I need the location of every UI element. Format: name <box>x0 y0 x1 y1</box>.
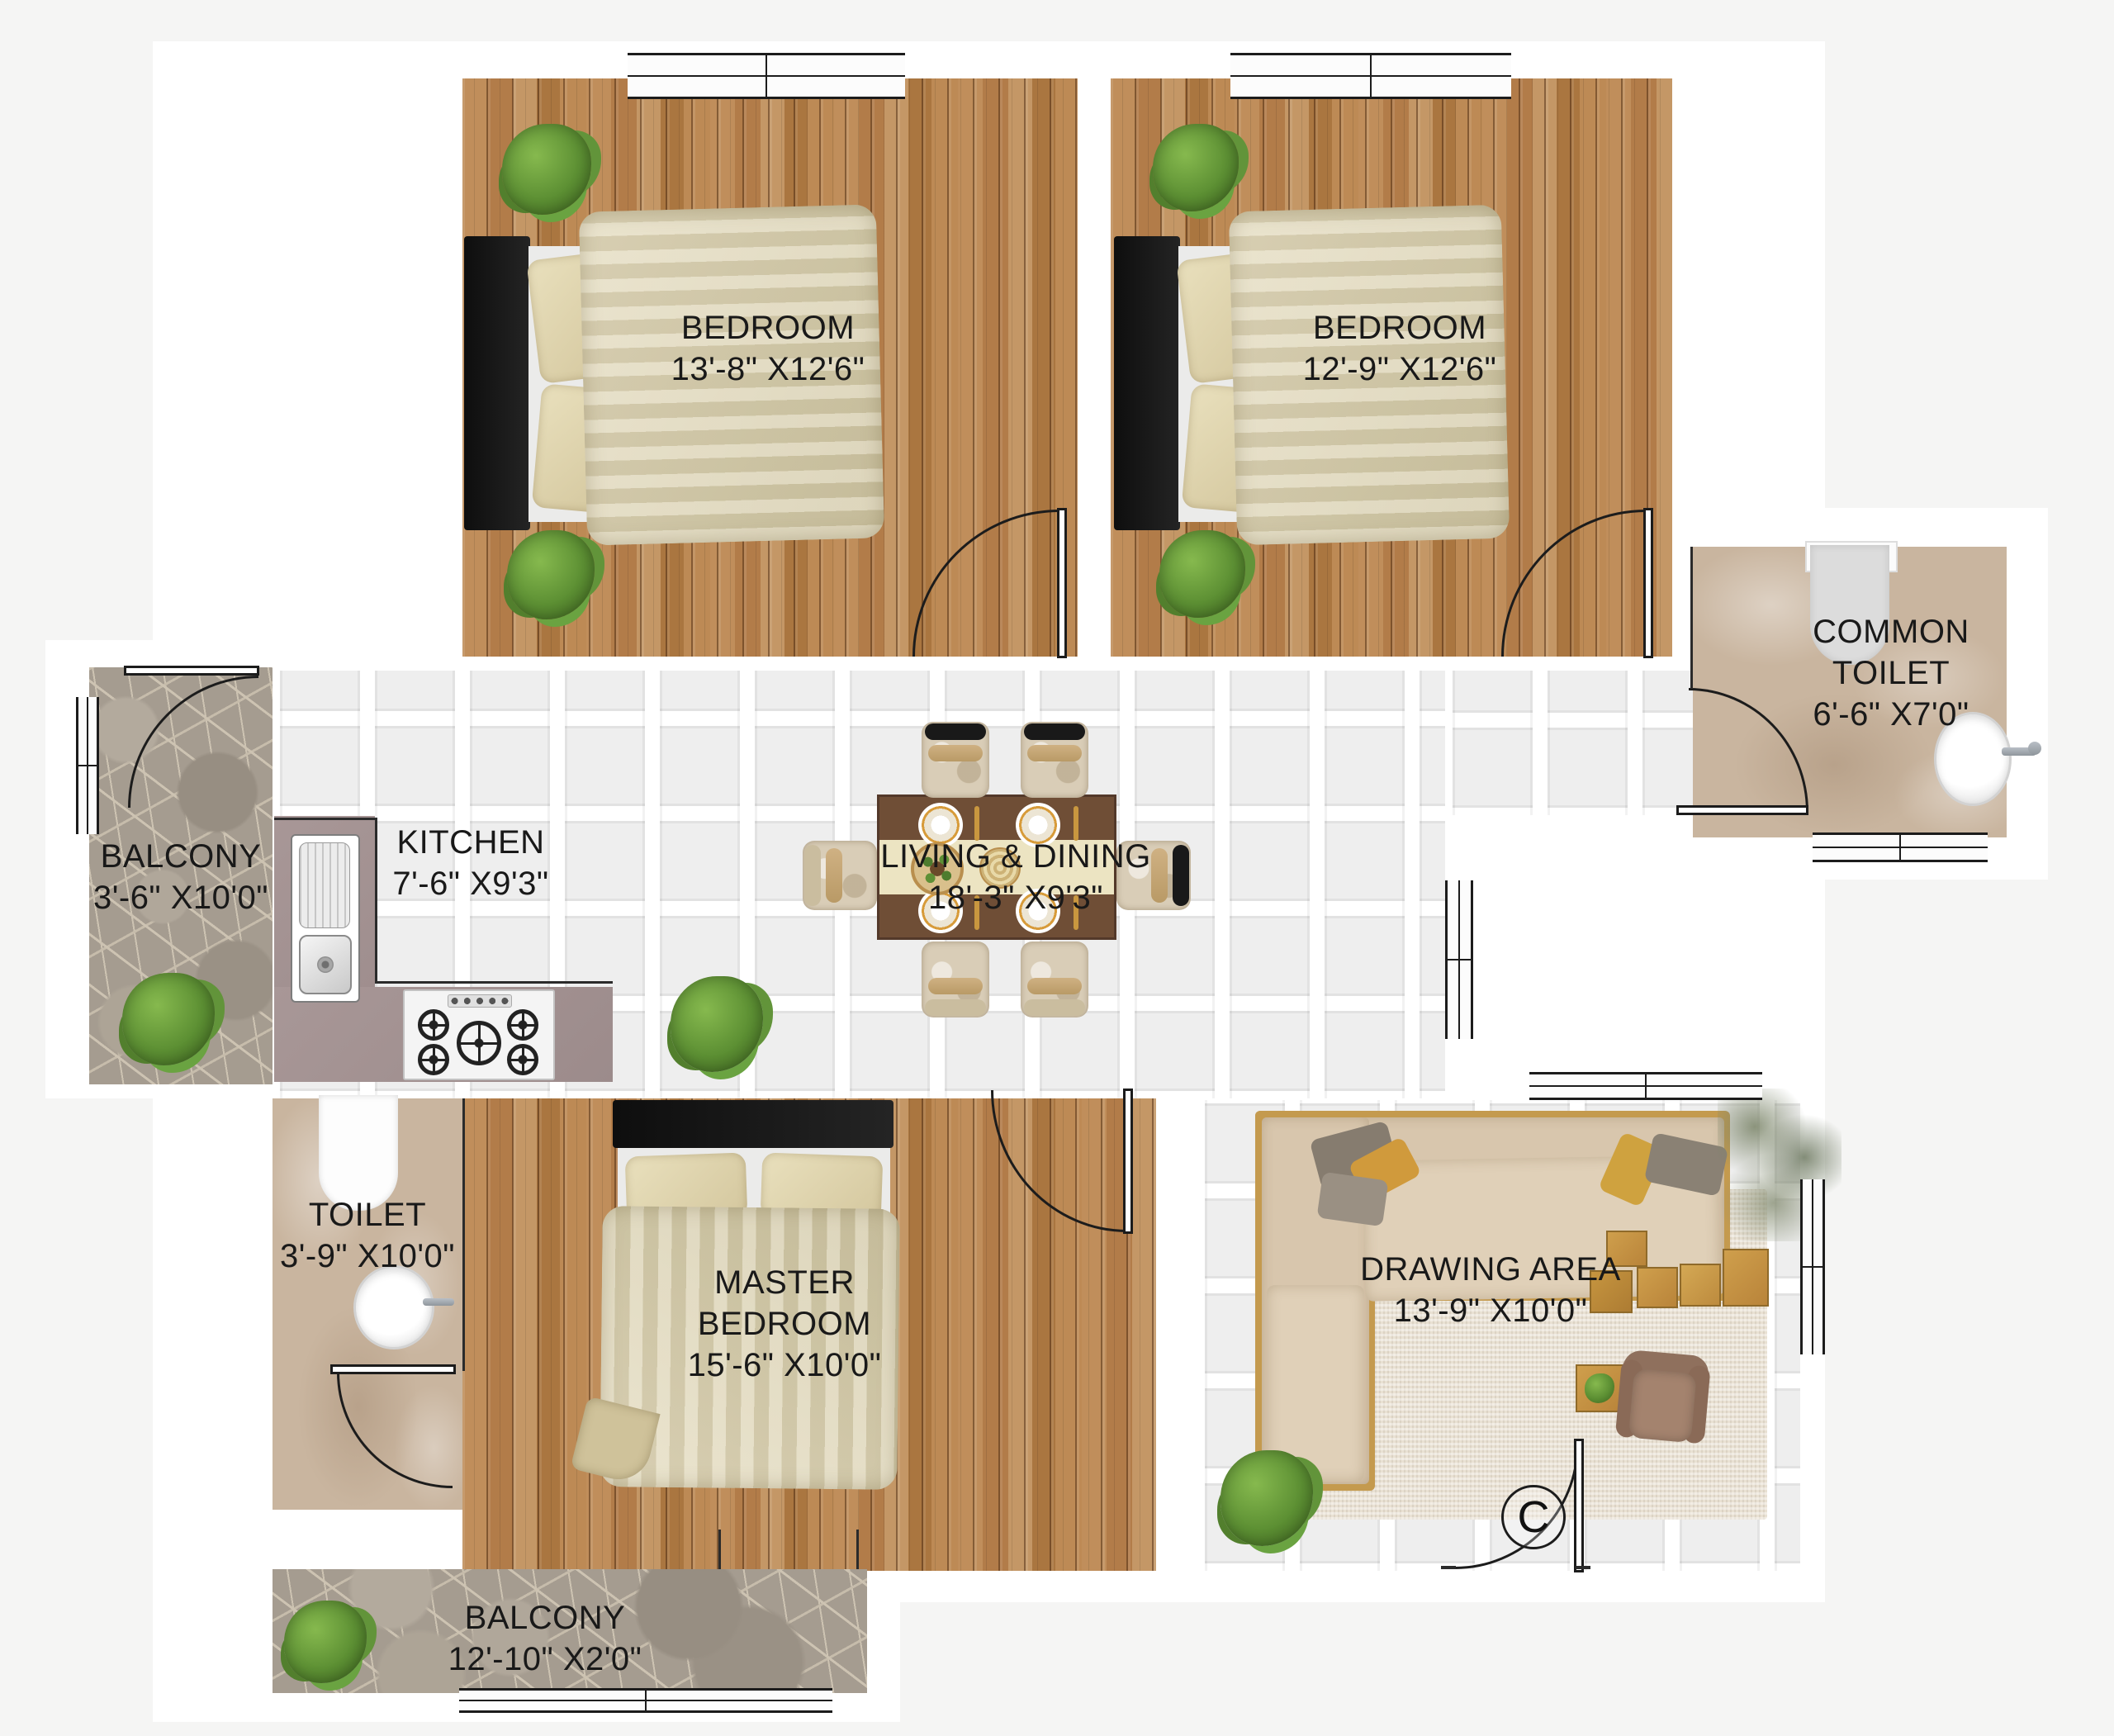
corridor-floor <box>1445 671 1693 815</box>
room-dims: 13'-9" X10'0" <box>1346 1290 1635 1331</box>
common-toilet-label: COMMON TOILET 6'-6" X7'0" <box>1763 611 2019 735</box>
dining-chair <box>1021 942 1088 1017</box>
coffee-cube-table <box>1723 1249 1769 1307</box>
bedroom-2-label: BEDROOM 12'-9" X12'6" <box>1255 307 1544 390</box>
bedroom-1-label: BEDROOM 13'-8" X12'6" <box>623 307 912 390</box>
entrance-jamb <box>1441 1566 1456 1569</box>
room-name: COMMON TOILET <box>1763 611 2019 694</box>
room-name: KITCHEN <box>355 822 586 863</box>
common-toilet-door-leaf <box>1676 805 1808 815</box>
balcony-left-label: BALCONY 3'-6" X10'0" <box>88 836 274 918</box>
room-dims: 6'-6" X7'0" <box>1763 694 2019 735</box>
armchair-seat <box>1628 1368 1697 1443</box>
room-name: BEDROOM <box>623 307 912 349</box>
window <box>1813 832 1988 862</box>
room-dims: 7'-6" X9'3" <box>355 863 586 904</box>
coffee-cube-table <box>1680 1264 1721 1307</box>
entrance-label-badge: C <box>1501 1485 1566 1549</box>
bedroom-1-door-leaf <box>1057 508 1067 658</box>
armchair <box>1616 1349 1709 1449</box>
living-dining-label: LIVING & DINING 18'-3" X9'3" <box>842 836 1189 918</box>
room-name: BEDROOM <box>1255 307 1544 349</box>
toilet-door-leaf <box>330 1364 456 1374</box>
window <box>1230 53 1511 99</box>
toilet-basin <box>353 1265 434 1349</box>
bed-headboard <box>464 236 530 530</box>
chair-backrest <box>925 999 986 1016</box>
room-dims: 12'-9" X12'6" <box>1255 349 1544 390</box>
room-dims: 18'-3" X9'3" <box>842 877 1189 918</box>
kitchen-stove <box>403 989 555 1080</box>
bed-headboard <box>1114 236 1180 530</box>
room-name: LIVING & DINING <box>842 836 1189 877</box>
room-dims: 12'-10" X2'0" <box>372 1639 718 1680</box>
stove-burner <box>418 1044 449 1075</box>
bedroom-2-door-leaf <box>1643 508 1653 658</box>
kitchen-label: KITCHEN 7'-6" X9'3" <box>355 822 586 904</box>
common-toilet-faucet-handle <box>2028 742 2041 755</box>
room-name: DRAWING AREA <box>1346 1249 1635 1290</box>
stove-burner-center <box>457 1021 501 1065</box>
window <box>1800 1179 1825 1354</box>
floor-plan-canvas: BEDROOM 13'-8" X12'6" BEDROOM 12'-9" X12… <box>0 0 2114 1736</box>
toilet-wall-edge <box>462 1098 465 1371</box>
sink-basin <box>299 935 352 994</box>
chair-cushion <box>826 848 842 903</box>
entrance-letter: C <box>1518 1495 1550 1539</box>
window <box>628 53 905 99</box>
window <box>1445 880 1473 1039</box>
room-name: MASTER BEDROOM <box>661 1262 908 1345</box>
sink-drain <box>317 956 334 973</box>
chair-cushion <box>1027 745 1082 761</box>
drawing-area-label: DRAWING AREA 13'-9" X10'0" <box>1346 1249 1635 1331</box>
dining-chair <box>1021 722 1088 798</box>
window <box>459 1688 832 1713</box>
sink-drainboard <box>299 842 350 928</box>
room-dims: 15'-6" X10'0" <box>661 1345 908 1386</box>
chair-cushion <box>1027 978 1082 994</box>
common-toilet-wall-edge <box>1690 547 1693 689</box>
side-table <box>1576 1364 1623 1412</box>
room-dims: 3'-6" X10'0" <box>88 877 274 918</box>
kitchen-sink <box>291 834 360 1003</box>
chair-backrest <box>925 723 986 740</box>
stove-burner <box>418 1009 449 1041</box>
kitchen-counter-edge-inner <box>375 981 613 984</box>
sofa-pillow <box>1316 1172 1388 1227</box>
toilet-label: TOILET 3'-9" X10'0" <box>271 1194 464 1277</box>
room-dims: 13'-8" X12'6" <box>623 349 912 390</box>
coffee-cube-table <box>1637 1267 1678 1308</box>
window <box>76 697 99 834</box>
chair-backrest <box>1024 999 1085 1016</box>
chair-cushion <box>928 745 983 761</box>
room-name: BALCONY <box>372 1597 718 1639</box>
toilet-wc <box>319 1095 398 1211</box>
stove-knob-strip <box>448 994 512 1008</box>
chair-cushion <box>928 978 983 994</box>
balcony-door-jamb <box>856 1530 859 1569</box>
stove-burner <box>507 1009 538 1041</box>
master-bed-headboard <box>613 1100 893 1148</box>
balcony-door-jamb <box>718 1530 721 1569</box>
room-dims: 3'-9" X10'0" <box>271 1236 464 1277</box>
stove-burner <box>507 1044 538 1075</box>
room-name: BALCONY <box>88 836 274 877</box>
dining-chair <box>922 942 989 1017</box>
dining-chair <box>922 722 989 798</box>
window <box>1529 1072 1762 1100</box>
toilet-faucet <box>423 1298 454 1306</box>
balcony-bottom-label: BALCONY 12'-10" X2'0" <box>372 1597 718 1680</box>
balcony-left-door-leaf <box>124 666 259 676</box>
kitchen-counter-edge-top <box>274 818 377 820</box>
plant-icon <box>1585 1373 1614 1403</box>
entrance-door-leaf <box>1574 1439 1584 1572</box>
entrance-jamb <box>1576 1566 1590 1569</box>
chair-backrest <box>804 845 821 906</box>
chair-backrest <box>1024 723 1085 740</box>
room-name: TOILET <box>271 1194 464 1236</box>
master-door-leaf <box>1123 1089 1133 1234</box>
master-bedroom-label: MASTER BEDROOM 15'-6" X10'0" <box>661 1262 908 1386</box>
